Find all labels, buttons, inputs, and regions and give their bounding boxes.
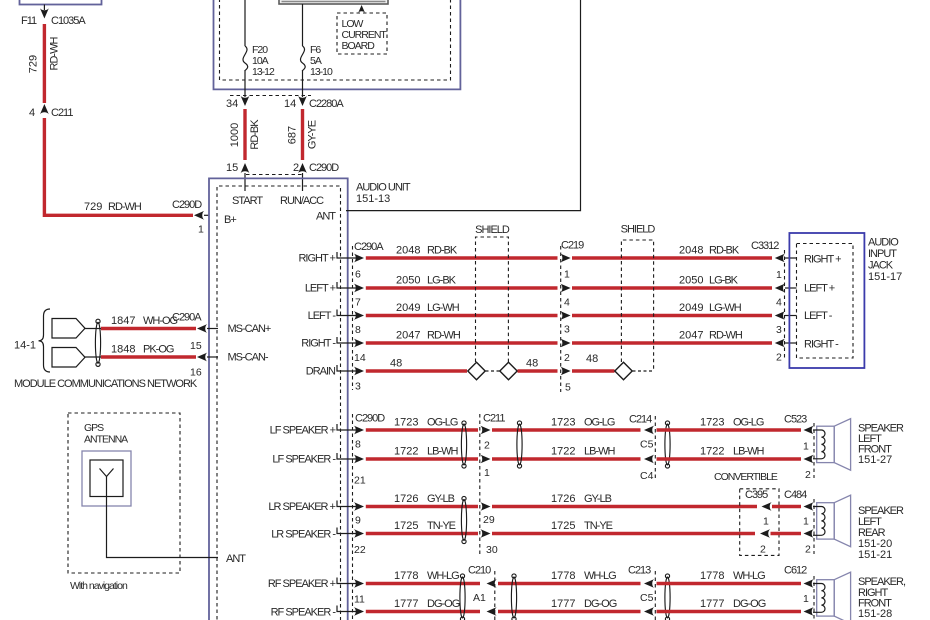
svg-text:C210: C210 — [468, 565, 491, 577]
svg-text:RIGHT +: RIGHT + — [804, 254, 841, 266]
svg-text:TN-YE: TN-YE — [584, 520, 613, 532]
svg-text:RD-BK: RD-BK — [427, 245, 458, 257]
svg-text:3: 3 — [564, 324, 570, 336]
svg-text:16: 16 — [190, 367, 202, 379]
svg-text:1722: 1722 — [700, 446, 724, 458]
svg-text:A1: A1 — [473, 592, 486, 604]
svg-text:C214: C214 — [629, 414, 652, 426]
svg-text:15: 15 — [226, 162, 238, 174]
svg-text:4: 4 — [776, 297, 782, 309]
svg-text:3: 3 — [355, 381, 361, 393]
svg-text:C5: C5 — [640, 439, 654, 451]
svg-text:1723: 1723 — [700, 417, 724, 429]
svg-text:LB-WH: LB-WH — [584, 446, 616, 458]
svg-text:ANTENNA: ANTENNA — [84, 434, 128, 446]
svg-text:2047: 2047 — [679, 330, 703, 342]
svg-text:With navigation: With navigation — [70, 580, 128, 592]
svg-text:B+: B+ — [224, 214, 236, 226]
svg-text:1: 1 — [776, 269, 782, 281]
svg-text:F11: F11 — [21, 15, 37, 27]
svg-text:34: 34 — [226, 98, 238, 110]
svg-text:2048: 2048 — [679, 245, 703, 257]
svg-text:9: 9 — [355, 515, 361, 527]
svg-text:LEFT -: LEFT - — [308, 310, 337, 322]
svg-text:1778: 1778 — [700, 570, 724, 582]
svg-text:C290A: C290A — [172, 312, 202, 324]
svg-text:MS-CAN-: MS-CAN- — [228, 352, 269, 364]
svg-text:RF SPEAKER +: RF SPEAKER + — [268, 578, 336, 590]
svg-text:LB-WH: LB-WH — [733, 446, 765, 458]
svg-text:C4: C4 — [640, 470, 654, 482]
svg-text:MODULE COMMUNICATIONS NETWORK: MODULE COMMUNICATIONS NETWORK — [14, 378, 198, 390]
svg-text:AUDIO UNIT: AUDIO UNIT — [356, 182, 411, 194]
svg-text:C213: C213 — [628, 565, 651, 577]
svg-text:RD-WH: RD-WH — [709, 330, 743, 342]
svg-text:RD-BK: RD-BK — [249, 119, 261, 150]
svg-text:151-17: 151-17 — [868, 271, 902, 283]
svg-text:4: 4 — [29, 107, 35, 119]
svg-text:13-10: 13-10 — [310, 66, 333, 78]
svg-text:LF SPEAKER -: LF SPEAKER - — [272, 454, 336, 466]
svg-text:LG-BK: LG-BK — [427, 275, 457, 287]
svg-text:4: 4 — [564, 297, 570, 309]
svg-text:13-12: 13-12 — [252, 66, 275, 78]
svg-text:2: 2 — [776, 352, 782, 364]
svg-text:8: 8 — [355, 324, 361, 336]
svg-text:21: 21 — [354, 475, 366, 487]
svg-text:1: 1 — [564, 269, 570, 281]
svg-text:687: 687 — [287, 126, 299, 144]
svg-text:C484: C484 — [784, 489, 807, 501]
svg-text:LB-WH: LB-WH — [427, 446, 459, 458]
svg-text:LEFT +: LEFT + — [804, 283, 835, 295]
svg-text:1778: 1778 — [394, 570, 418, 582]
svg-text:14: 14 — [354, 352, 366, 364]
svg-text:2: 2 — [805, 469, 811, 481]
svg-text:48: 48 — [526, 358, 538, 370]
svg-text:WH-LG: WH-LG — [427, 570, 459, 582]
svg-text:1723: 1723 — [551, 417, 575, 429]
svg-text:PK-OG: PK-OG — [143, 344, 174, 356]
svg-text:1777: 1777 — [700, 598, 724, 610]
svg-text:151-13: 151-13 — [356, 193, 390, 205]
svg-text:C290A: C290A — [354, 241, 384, 253]
svg-text:OG-LG: OG-LG — [584, 417, 615, 429]
svg-text:11: 11 — [354, 594, 365, 606]
svg-text:151-28: 151-28 — [858, 608, 892, 620]
svg-text:SHIELD: SHIELD — [621, 224, 656, 236]
svg-text:729: 729 — [28, 55, 40, 73]
svg-text:1777: 1777 — [394, 598, 418, 610]
svg-text:30: 30 — [486, 544, 498, 556]
svg-text:1848: 1848 — [111, 344, 135, 356]
svg-text:29: 29 — [483, 514, 495, 526]
svg-text:C290D: C290D — [172, 199, 202, 211]
svg-text:14-1: 14-1 — [14, 340, 36, 352]
svg-text:C219: C219 — [561, 240, 584, 252]
svg-text:C5: C5 — [640, 592, 654, 604]
svg-text:TN-YE: TN-YE — [427, 520, 456, 532]
svg-text:LR SPEAKER -: LR SPEAKER - — [271, 529, 336, 541]
svg-text:LG-WH: LG-WH — [709, 302, 742, 314]
svg-text:DG-OG: DG-OG — [733, 598, 766, 610]
svg-text:LEFT -: LEFT - — [804, 310, 833, 322]
svg-text:6: 6 — [355, 269, 361, 281]
svg-text:JACK: JACK — [868, 260, 894, 272]
svg-text:RIGHT -: RIGHT - — [301, 338, 336, 350]
svg-text:C395: C395 — [745, 489, 768, 501]
svg-text:LF SPEAKER +: LF SPEAKER + — [270, 425, 336, 437]
svg-text:START: START — [232, 195, 263, 207]
svg-text:C211: C211 — [51, 107, 73, 119]
svg-text:ANT: ANT — [226, 553, 246, 565]
svg-text:LEFT +: LEFT + — [305, 283, 336, 295]
svg-text:RD-BK: RD-BK — [709, 245, 740, 257]
svg-text:INPUT: INPUT — [868, 248, 897, 260]
svg-text:DG-OG: DG-OG — [584, 598, 617, 610]
svg-text:1725: 1725 — [394, 520, 418, 532]
svg-text:2: 2 — [293, 162, 299, 174]
svg-text:729: 729 — [84, 201, 102, 213]
svg-text:1: 1 — [484, 467, 490, 479]
svg-text:LR SPEAKER +: LR SPEAKER + — [268, 501, 335, 513]
svg-text:2: 2 — [564, 352, 570, 364]
svg-text:1722: 1722 — [551, 446, 575, 458]
svg-text:C3312: C3312 — [751, 240, 779, 252]
svg-text:1: 1 — [198, 224, 204, 236]
svg-text:22: 22 — [354, 544, 366, 556]
svg-text:RIGHT -: RIGHT - — [804, 339, 839, 351]
svg-text:1726: 1726 — [394, 493, 418, 505]
svg-text:48: 48 — [390, 358, 402, 370]
svg-text:2049: 2049 — [396, 302, 420, 314]
svg-text:1725: 1725 — [551, 520, 575, 532]
svg-text:ANT: ANT — [316, 211, 336, 223]
svg-text:2: 2 — [805, 544, 811, 556]
svg-text:15: 15 — [190, 340, 202, 352]
svg-text:RD-WH: RD-WH — [108, 201, 142, 213]
svg-text:2050: 2050 — [396, 275, 420, 287]
svg-text:GY-YE: GY-YE — [307, 120, 319, 149]
svg-text:7: 7 — [355, 297, 361, 309]
svg-text:DG-OG: DG-OG — [427, 598, 460, 610]
svg-text:151-21: 151-21 — [858, 549, 892, 561]
svg-text:DRAIN: DRAIN — [306, 366, 336, 378]
svg-text:SHIELD: SHIELD — [475, 224, 510, 236]
svg-text:CONVERTIBLE: CONVERTIBLE — [714, 471, 778, 483]
svg-text:1: 1 — [803, 593, 809, 605]
svg-text:RD-WH: RD-WH — [49, 37, 61, 71]
svg-text:GPS: GPS — [84, 422, 104, 434]
svg-text:1726: 1726 — [551, 493, 575, 505]
svg-text:1723: 1723 — [394, 417, 418, 429]
svg-text:1778: 1778 — [551, 570, 575, 582]
svg-text:C612: C612 — [784, 565, 807, 577]
svg-text:OG-LG: OG-LG — [427, 417, 458, 429]
svg-text:1722: 1722 — [394, 446, 418, 458]
svg-text:C2280A: C2280A — [309, 98, 344, 110]
svg-text:RF SPEAKER -: RF SPEAKER - — [271, 607, 337, 619]
svg-text:RIGHT +: RIGHT + — [298, 253, 335, 265]
svg-text:2049: 2049 — [679, 302, 703, 314]
svg-text:C1035A: C1035A — [51, 15, 86, 27]
svg-text:3: 3 — [776, 324, 782, 336]
svg-text:5: 5 — [565, 382, 571, 394]
svg-text:OG-LG: OG-LG — [733, 417, 764, 429]
svg-text:1: 1 — [803, 441, 809, 453]
svg-text:MS-CAN+: MS-CAN+ — [228, 323, 271, 335]
svg-text:RD-WH: RD-WH — [427, 330, 461, 342]
svg-text:2048: 2048 — [396, 245, 420, 257]
svg-text:1: 1 — [803, 516, 809, 528]
svg-text:LG-BK: LG-BK — [709, 275, 739, 287]
svg-text:RUN/ACC: RUN/ACC — [280, 195, 324, 207]
svg-text:151-27: 151-27 — [858, 454, 892, 466]
svg-text:1847: 1847 — [111, 315, 135, 327]
svg-text:2: 2 — [484, 440, 490, 452]
svg-text:14: 14 — [284, 98, 296, 110]
svg-text:8: 8 — [355, 439, 361, 451]
svg-text:2: 2 — [760, 544, 766, 556]
svg-text:AUDIO: AUDIO — [868, 237, 899, 249]
svg-text:C290D: C290D — [309, 162, 339, 174]
svg-text:2047: 2047 — [396, 330, 420, 342]
svg-text:WH-LG: WH-LG — [733, 570, 765, 582]
svg-text:GY-LB: GY-LB — [427, 493, 455, 505]
svg-text:1: 1 — [763, 516, 769, 528]
svg-text:2050: 2050 — [679, 275, 703, 287]
svg-text:1777: 1777 — [551, 598, 575, 610]
svg-text:C211: C211 — [483, 413, 505, 425]
svg-text:48: 48 — [586, 353, 598, 365]
svg-text:GY-LB: GY-LB — [584, 493, 612, 505]
svg-text:C523: C523 — [784, 414, 807, 426]
svg-text:WH-LG: WH-LG — [584, 570, 616, 582]
svg-text:C290D: C290D — [355, 413, 385, 425]
svg-text:1000: 1000 — [229, 123, 241, 147]
svg-text:BOARD: BOARD — [342, 40, 376, 52]
svg-text:LG-WH: LG-WH — [427, 302, 460, 314]
